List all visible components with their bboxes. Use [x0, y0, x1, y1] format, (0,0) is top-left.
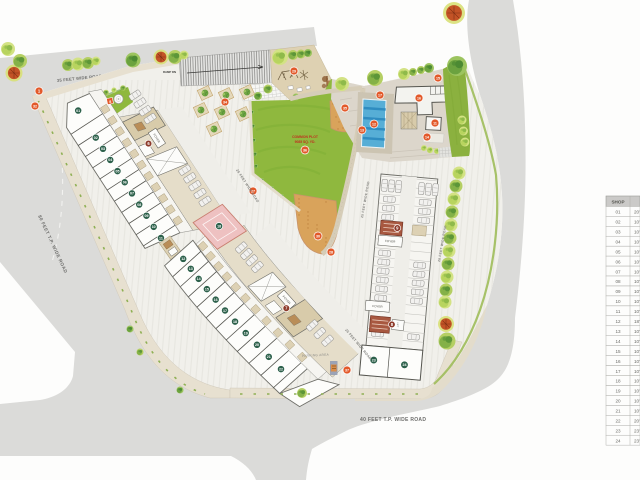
svg-text:12: 12 [181, 257, 185, 261]
svg-text:36: 36 [303, 148, 307, 152]
svg-text:13: 13 [615, 329, 621, 334]
svg-text:17: 17 [378, 93, 382, 97]
svg-text:14: 14 [615, 339, 621, 344]
svg-text:30: 30 [316, 234, 320, 238]
svg-text:09: 09 [144, 214, 148, 218]
svg-text:13: 13 [189, 267, 193, 271]
svg-text:10: 10 [615, 299, 621, 304]
svg-text:COMMON PLOT: COMMON PLOT [292, 135, 319, 139]
svg-text:10': 10' [634, 230, 640, 235]
svg-text:03: 03 [615, 230, 621, 235]
svg-text:04: 04 [615, 239, 621, 244]
svg-text:10: 10 [152, 225, 156, 229]
svg-text:10': 10' [634, 259, 640, 264]
svg-text:28: 28 [329, 250, 333, 254]
svg-text:10': 10' [634, 369, 640, 374]
svg-text:08: 08 [137, 203, 141, 207]
svg-text:RAMP DN: RAMP DN [163, 70, 176, 74]
svg-text:29: 29 [292, 69, 296, 73]
svg-text:10': 10' [634, 349, 640, 354]
svg-text:10': 10' [634, 299, 640, 304]
svg-text:18': 18' [634, 319, 640, 324]
svg-text:18: 18 [217, 224, 221, 228]
svg-text:06: 06 [123, 181, 127, 185]
svg-text:07: 07 [130, 192, 134, 196]
svg-text:07: 07 [615, 269, 621, 274]
svg-text:9085 SQ. YD.: 9085 SQ. YD. [295, 140, 316, 144]
svg-text:16: 16 [615, 359, 621, 364]
svg-text:17: 17 [615, 369, 621, 374]
svg-text:16: 16 [417, 96, 421, 100]
svg-text:10': 10' [634, 329, 640, 334]
svg-text:14: 14 [197, 277, 201, 281]
svg-text:01: 01 [76, 109, 80, 113]
svg-text:15: 15 [436, 76, 440, 80]
svg-text:08: 08 [615, 279, 621, 284]
svg-text:35: 35 [343, 106, 347, 110]
svg-text:12: 12 [615, 319, 621, 324]
svg-text:23': 23' [634, 438, 640, 443]
svg-text:23: 23 [615, 429, 621, 434]
svg-text:11: 11 [616, 309, 621, 314]
svg-text:19: 19 [244, 331, 248, 335]
svg-text:10': 10' [634, 339, 640, 344]
svg-text:13: 13 [360, 128, 364, 132]
svg-text:10': 10' [634, 379, 640, 384]
svg-text:18: 18 [233, 320, 237, 324]
svg-text:23': 23' [634, 429, 640, 434]
svg-text:21: 21 [267, 355, 271, 359]
svg-text:10': 10' [634, 249, 640, 254]
svg-text:SHOP: SHOP [611, 200, 624, 205]
svg-text:12: 12 [372, 122, 376, 126]
svg-text:16: 16 [214, 298, 218, 302]
svg-text:18: 18 [615, 379, 621, 384]
svg-text:02: 02 [94, 136, 98, 140]
svg-text:10': 10' [634, 309, 640, 314]
svg-text:04: 04 [108, 158, 112, 162]
svg-text:22: 22 [615, 419, 621, 424]
svg-text:01: 01 [615, 210, 621, 215]
svg-text:11: 11 [433, 121, 437, 125]
svg-text:21: 21 [615, 409, 621, 414]
svg-text:10': 10' [634, 359, 640, 364]
svg-text:05: 05 [115, 169, 119, 173]
svg-text:11: 11 [159, 236, 163, 240]
svg-text:40 FEET T.P. WIDE ROAD: 40 FEET T.P. WIDE ROAD [360, 417, 426, 423]
svg-text:10': 10' [634, 289, 640, 294]
svg-text:19: 19 [615, 389, 621, 394]
svg-text:02: 02 [615, 220, 621, 225]
svg-text:15: 15 [615, 349, 621, 354]
svg-text:10': 10' [634, 389, 640, 394]
svg-text:24: 24 [402, 363, 406, 367]
svg-text:20: 20 [255, 343, 259, 347]
svg-text:10': 10' [634, 279, 640, 284]
svg-text:32: 32 [33, 104, 37, 108]
svg-text:34: 34 [223, 100, 227, 104]
svg-text:22: 22 [279, 367, 283, 371]
svg-text:06: 06 [615, 259, 621, 264]
svg-text:05: 05 [615, 249, 621, 254]
svg-text:15: 15 [205, 287, 209, 291]
svg-text:37: 37 [345, 368, 349, 372]
svg-text:24: 24 [615, 438, 621, 443]
svg-text:10': 10' [634, 269, 640, 274]
svg-text:20': 20' [634, 210, 640, 215]
svg-text:10': 10' [634, 409, 640, 414]
svg-text:10': 10' [634, 220, 640, 225]
svg-text:10': 10' [634, 399, 640, 404]
svg-text:14: 14 [425, 135, 429, 139]
svg-text:20: 20 [615, 399, 621, 404]
svg-text:10': 10' [634, 239, 640, 244]
svg-text:03: 03 [101, 147, 105, 151]
svg-text:09: 09 [615, 289, 621, 294]
svg-text:20': 20' [634, 419, 640, 424]
svg-text:17: 17 [223, 309, 227, 313]
svg-text:23: 23 [372, 358, 376, 362]
